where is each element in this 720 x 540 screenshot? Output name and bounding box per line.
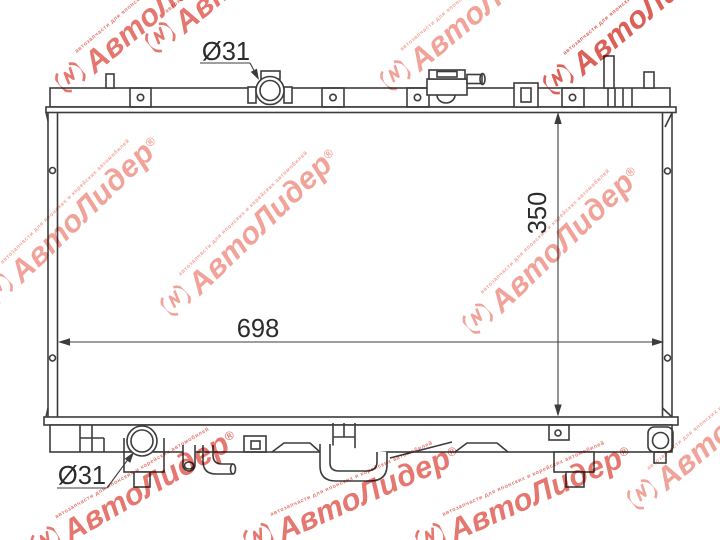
dimension-core-width: 698 xyxy=(58,315,664,346)
bottom-tank xyxy=(44,417,678,487)
radiator-diagram-page: 698 350 xyxy=(0,0,720,540)
filler-neck xyxy=(248,71,292,105)
core-left-side-plate xyxy=(46,112,58,417)
top-pin-short xyxy=(644,72,654,88)
dimension-core-height: 350 xyxy=(524,112,562,417)
callout-outlet: Ø31 xyxy=(57,452,134,490)
top-tank xyxy=(46,56,676,113)
bottom-foot-right xyxy=(554,452,594,487)
label-filler-neck-diameter: Ø31 xyxy=(202,38,250,66)
core-right-side-plate xyxy=(663,112,673,417)
top-pin-left xyxy=(106,74,114,88)
top-pin-tall xyxy=(604,56,614,88)
dimension-label-core-height: 350 xyxy=(524,192,552,235)
drain-tube xyxy=(183,445,195,471)
label-outlet-diameter: Ø31 xyxy=(58,462,106,490)
callout-filler-neck: Ø31 xyxy=(200,38,259,80)
dimension-label-core-width: 698 xyxy=(237,315,280,343)
top-square-fitting xyxy=(514,83,538,107)
radiator-line-drawing: 698 350 xyxy=(0,0,720,540)
